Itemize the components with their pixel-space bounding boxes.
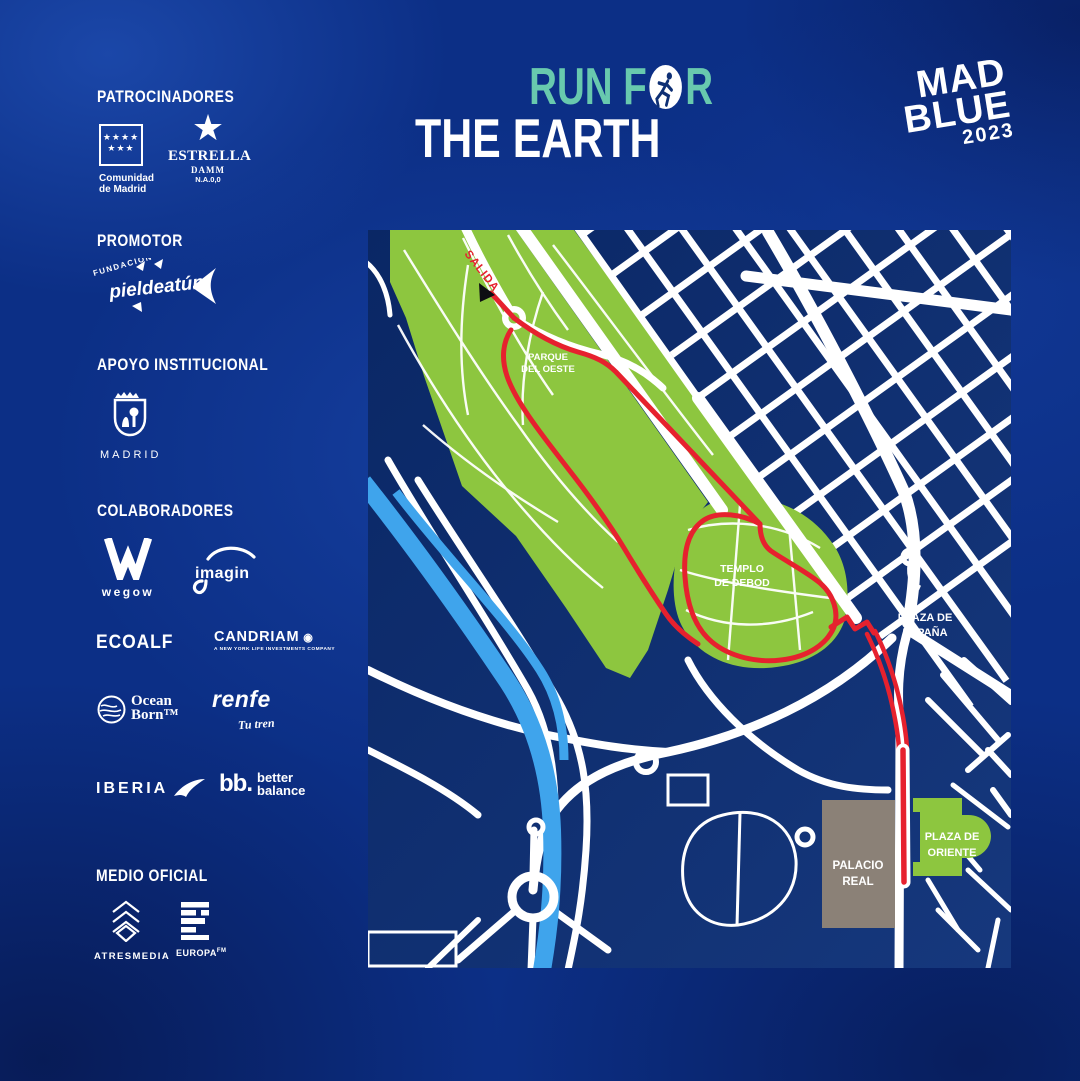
logo-iberia: IBERIA bbox=[96, 779, 206, 799]
logo-estrella-damm: ★ ESTRELLA DAMM N.A.0,0 bbox=[168, 110, 248, 184]
logo-atresmedia: ATRESMEDIA bbox=[94, 900, 158, 962]
ocean-born-globe-icon bbox=[97, 695, 126, 724]
pieldeatun-text: pieldeatún bbox=[107, 272, 205, 303]
comunidad-caption-line2: de Madrid bbox=[99, 184, 154, 195]
fundacion-text: FUNDACIÓN bbox=[92, 258, 154, 278]
logo-better-balance: bb. better balance bbox=[219, 770, 305, 798]
fish-icon: FUNDACIÓN pieldeatún bbox=[92, 258, 222, 316]
madrid-caption: MADRID bbox=[100, 449, 160, 461]
title-the-earth: THE EARTH bbox=[415, 112, 660, 164]
estrella-damm: DAMM bbox=[168, 165, 248, 175]
candriam-text: CANDRIAM bbox=[214, 629, 299, 645]
event-poster: PATROCINADORES ★★★★ ★★★ Comunidad de Mad… bbox=[0, 0, 1080, 1081]
atresmedia-text: ATRESMEDIA bbox=[94, 951, 158, 962]
comunidad-stars-row2: ★★★ bbox=[101, 143, 141, 154]
logo-europa-fm: EUROPAFM bbox=[176, 902, 216, 958]
comunidad-flag-icon: ★★★★ ★★★ bbox=[99, 124, 143, 166]
wegow-text: wegow bbox=[98, 585, 158, 599]
logo-wegow: wegow bbox=[98, 538, 158, 599]
label-templo-line2: DE DEBOD bbox=[714, 577, 770, 589]
logo-fundacion-pieldeatun: FUNDACIÓN pieldeatún bbox=[92, 258, 222, 316]
estrella-star-icon: ★ bbox=[168, 110, 248, 146]
section-heading-apoyo: APOYO INSTITUCIONAL bbox=[97, 355, 268, 375]
europa-fm-text: EUROPA bbox=[176, 948, 217, 958]
comunidad-caption-line1: Comunidad bbox=[99, 173, 154, 184]
label-palacio-line1: PALACIO bbox=[833, 860, 884, 872]
runner-icon bbox=[649, 64, 683, 110]
europa-fm-e-icon bbox=[181, 902, 211, 940]
event-title: RUN F R THE EARTH bbox=[415, 62, 713, 164]
logo-ayuntamiento-madrid: MADRID bbox=[100, 390, 160, 461]
route-finish bbox=[903, 750, 904, 882]
iberia-swoosh-icon bbox=[174, 779, 206, 799]
imagin-mark: imagin bbox=[192, 543, 264, 597]
label-templo-line1: TEMPLO bbox=[720, 563, 764, 575]
section-heading-colaboradores: COLABORADORES bbox=[97, 501, 234, 521]
logo-renfe: renfe Tu tren bbox=[212, 686, 275, 732]
label-palacio-line2: REAL bbox=[842, 876, 873, 888]
wegow-w-icon bbox=[104, 538, 152, 580]
logo-ocean-born: Ocean Born™ bbox=[97, 695, 179, 724]
logo-candriam: CANDRIAM ◉ A NEW YORK LIFE INVESTMENTS C… bbox=[214, 629, 335, 652]
title-line1: RUN F R bbox=[492, 62, 713, 112]
candriam-tagline: A NEW YORK LIFE INVESTMENTS COMPANY bbox=[214, 647, 335, 652]
estrella-na: N.A.0,0 bbox=[168, 175, 248, 184]
section-heading-promotor: PROMOTOR bbox=[97, 231, 183, 251]
renfe-text: renfe bbox=[212, 686, 275, 713]
comunidad-stars-row1: ★★★★ bbox=[101, 132, 141, 143]
section-heading-medio-oficial: MEDIO OFICIAL bbox=[96, 866, 208, 886]
atresmedia-icon bbox=[109, 900, 143, 942]
label-parque-line2: DEL OESTE bbox=[521, 364, 575, 375]
madblue-logo: MAD BLUE 2023 bbox=[894, 56, 1016, 157]
imagin-text: imagin bbox=[195, 565, 250, 582]
route-map: SALIDA PARQUE DEL OESTE TEMPLO DE DEBOD … bbox=[368, 230, 1011, 968]
label-plaza-oriente-line2: ORIENTE bbox=[928, 847, 977, 859]
better-balance-bb-icon: bb. bbox=[219, 770, 252, 798]
label-parque-line1: PARQUE bbox=[528, 352, 568, 363]
europa-fm-fm: FM bbox=[217, 948, 227, 954]
madrid-crest-icon bbox=[109, 390, 151, 440]
logo-comunidad-de-madrid: ★★★★ ★★★ Comunidad de Madrid bbox=[99, 124, 154, 195]
better-balance-line2: balance bbox=[257, 784, 305, 797]
ocean-born-line2: Born™ bbox=[131, 709, 179, 723]
title-run-f: RUN F bbox=[529, 62, 647, 112]
iberia-text: IBERIA bbox=[96, 780, 168, 798]
logo-imagin: imagin bbox=[192, 543, 264, 602]
section-heading-patrocinadores: PATROCINADORES bbox=[97, 87, 234, 107]
title-r: R bbox=[685, 62, 713, 112]
candriam-globe-icon: ◉ bbox=[299, 632, 313, 644]
estrella-name: ESTRELLA bbox=[168, 148, 248, 165]
label-plaza-espana-line1: PLAZA DE bbox=[898, 612, 953, 624]
label-plaza-oriente-line1: PLAZA DE bbox=[925, 831, 980, 843]
renfe-tagline: Tu tren bbox=[238, 716, 276, 734]
label-plaza-espana-line2: ESPAÑA bbox=[902, 626, 947, 639]
logo-ecoalf: ECOALF bbox=[96, 632, 173, 654]
